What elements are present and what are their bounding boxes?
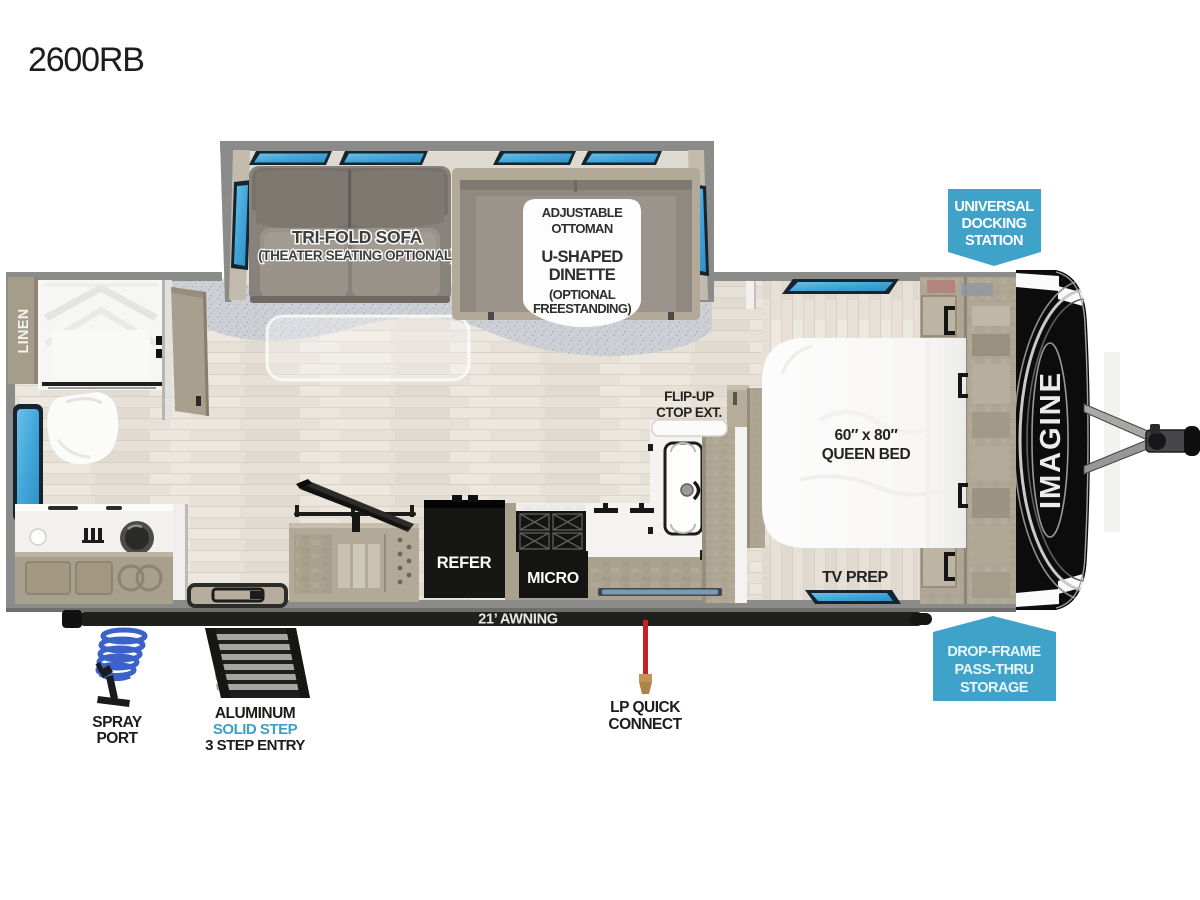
svg-text:FREESTANDING): FREESTANDING) xyxy=(533,301,631,316)
svg-text:STORAGE: STORAGE xyxy=(960,680,1029,696)
svg-text:FLIP-UP: FLIP-UP xyxy=(664,389,714,404)
svg-text:OTTOMAN: OTTOMAN xyxy=(551,221,612,236)
svg-text:LINEN: LINEN xyxy=(16,309,32,354)
svg-text:PORT: PORT xyxy=(96,730,138,747)
svg-text:LP QUICK: LP QUICK xyxy=(610,699,681,716)
svg-text:CTOP EXT.: CTOP EXT. xyxy=(656,405,722,420)
svg-text:(OPTIONAL: (OPTIONAL xyxy=(549,287,616,302)
svg-text:UNIVERSAL: UNIVERSAL xyxy=(954,199,1034,215)
svg-text:DROP-FRAME: DROP-FRAME xyxy=(947,644,1041,660)
svg-text:SPRAY: SPRAY xyxy=(92,714,143,731)
svg-text:REFER: REFER xyxy=(437,554,492,572)
svg-text:(THEATER SEATING OPTIONAL): (THEATER SEATING OPTIONAL) xyxy=(258,248,456,263)
svg-text:IMAGINE: IMAGINE xyxy=(1035,371,1067,509)
svg-text:DINETTE: DINETTE xyxy=(549,266,616,284)
svg-text:QUEEN BED: QUEEN BED xyxy=(822,446,911,463)
svg-text:ALUMINUM: ALUMINUM xyxy=(215,705,295,722)
svg-text:ADJUSTABLE: ADJUSTABLE xyxy=(542,205,623,220)
svg-text:21’ AWNING: 21’ AWNING xyxy=(478,612,557,628)
svg-text:U-SHAPED: U-SHAPED xyxy=(541,248,623,266)
svg-text:CONNECT: CONNECT xyxy=(608,716,682,733)
svg-text:MICRO: MICRO xyxy=(527,570,579,587)
svg-text:60″ x 80″: 60″ x 80″ xyxy=(835,427,899,444)
svg-text:SOLID STEP: SOLID STEP xyxy=(213,721,298,738)
svg-text:PASS-THRU: PASS-THRU xyxy=(954,662,1033,678)
svg-text:TV PREP: TV PREP xyxy=(822,569,888,586)
svg-text:STATION: STATION xyxy=(965,233,1023,249)
svg-text:DOCKING: DOCKING xyxy=(962,216,1027,232)
svg-text:TRI-FOLD SOFA: TRI-FOLD SOFA xyxy=(292,227,423,247)
svg-text:2600RB: 2600RB xyxy=(28,41,144,79)
svg-text:3 STEP ENTRY: 3 STEP ENTRY xyxy=(205,737,305,754)
